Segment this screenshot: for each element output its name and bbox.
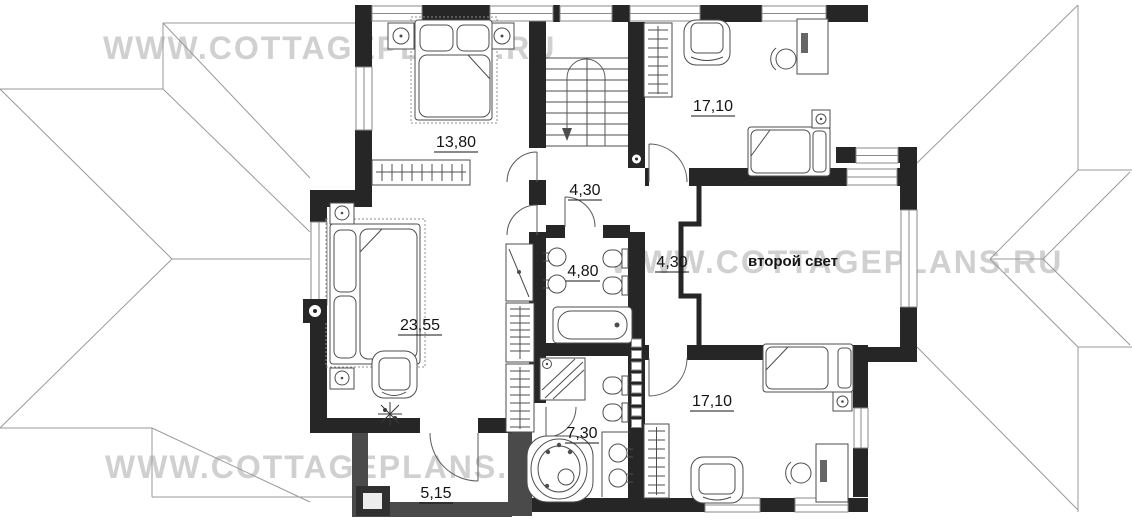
monitor-icon — [820, 460, 827, 482]
balcony-column-core — [363, 493, 382, 509]
bedroom-bottom-right-furniture — [644, 344, 853, 503]
floor-plan-page: WWW.COTTAGEPLANS.RU WWW.COTTAGEPLANS.RU … — [0, 0, 1132, 520]
roof-lines-left — [0, 23, 355, 502]
pillow — [334, 296, 356, 358]
blanket — [360, 229, 417, 359]
desk-chair-icon — [791, 463, 811, 483]
bedroom-top-left-furniture — [372, 17, 514, 185]
watermarks: WWW.COTTAGEPLANS.RU WWW.COTTAGEPLANS.RU … — [103, 30, 1063, 485]
plant-icon — [378, 402, 402, 426]
pillow — [420, 25, 453, 51]
room-area-label: 17,10 — [692, 393, 732, 410]
room-area-label: 4,30 — [569, 182, 600, 199]
room-area-label: 4,30 — [656, 254, 687, 271]
bathtub-drain — [615, 323, 620, 328]
floor-plan-canvas: WWW.COTTAGEPLANS.RU WWW.COTTAGEPLANS.RU … — [0, 0, 1132, 520]
door-arc — [507, 152, 537, 182]
blanket — [751, 130, 810, 173]
toilet-icon — [603, 377, 622, 394]
blanket — [419, 55, 490, 117]
sink-icon — [609, 444, 627, 462]
blanket — [766, 347, 828, 389]
room-area-label: 13,80 — [436, 134, 476, 151]
stairs — [546, 58, 628, 146]
watermark-bottom: WWW.COTTAGEPLANS.RU — [105, 449, 558, 485]
room-area-label: 23,55 — [400, 317, 440, 334]
room-area-label: 7,30 — [566, 425, 597, 442]
door-arc — [507, 205, 537, 235]
toilet-icon — [603, 250, 622, 267]
desk-chair-icon — [776, 49, 796, 69]
door-arc — [649, 144, 687, 182]
pillow — [813, 131, 826, 172]
bathroom-bottom-fixtures — [527, 339, 642, 502]
sink-icon — [548, 275, 566, 293]
door-arc — [649, 358, 687, 396]
sink-icon — [609, 469, 627, 487]
toilet-icon — [603, 404, 622, 421]
room-area-label: 4,80 — [567, 263, 598, 280]
pillow — [838, 348, 851, 388]
second-light-label: второй свет — [748, 253, 838, 270]
room-area-label: 5,15 — [420, 485, 451, 502]
pillow — [334, 230, 356, 292]
room-area-label: 17,10 — [693, 98, 733, 115]
pillow — [457, 25, 489, 51]
door-arc — [565, 197, 595, 227]
monitor-icon — [801, 33, 808, 53]
toilet-icon — [603, 277, 622, 294]
sink-icon — [548, 248, 566, 266]
